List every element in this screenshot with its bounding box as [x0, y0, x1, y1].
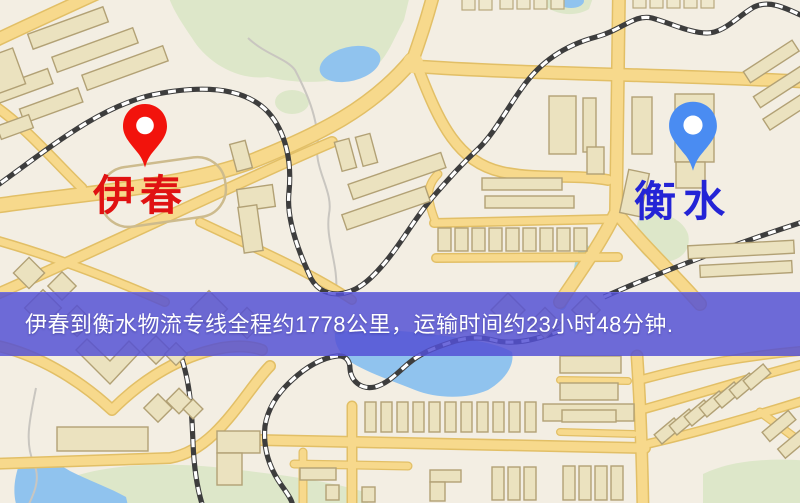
map-screenshot: 伊春 衡水 伊春到衡水物流专线全程约1778公里，运输时间约23小时48分钟. [0, 0, 800, 503]
destination-pin[interactable] [668, 100, 718, 173]
origin-pin[interactable] [122, 103, 168, 169]
pin-hole [136, 117, 154, 135]
destination-city-label: 衡水 [634, 182, 732, 224]
route-info-banner: 伊春到衡水物流专线全程约1778公里，运输时间约23小时48分钟. [0, 292, 800, 356]
map-canvas[interactable] [0, 0, 800, 503]
pin-icon [669, 102, 717, 171]
pin-hole [683, 116, 702, 135]
route-info-text: 伊春到衡水物流专线全程约1778公里，运输时间约23小时48分钟. [0, 293, 800, 356]
origin-city-label: 伊春 [93, 176, 187, 218]
pin-icon [123, 104, 167, 168]
